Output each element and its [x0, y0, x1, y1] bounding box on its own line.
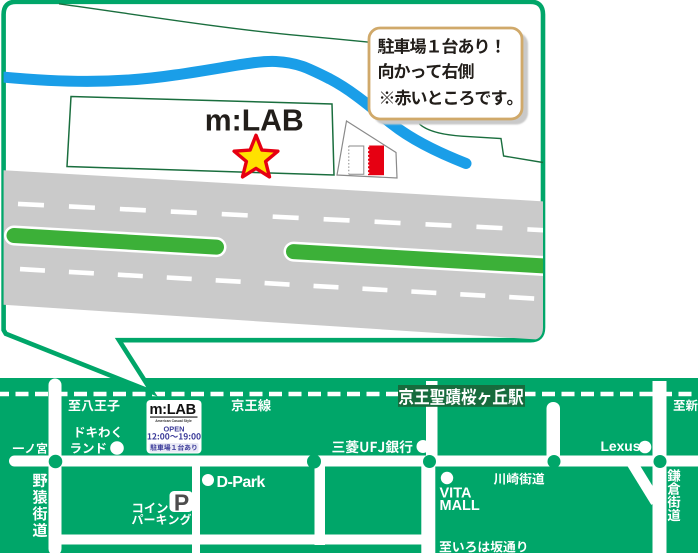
svg-text:American Casual Style: American Casual Style [155, 419, 192, 423]
svg-text:MALL: MALL [440, 498, 480, 514]
svg-text:D-Park: D-Park [217, 474, 266, 491]
svg-text:OPEN: OPEN [164, 425, 185, 434]
svg-text:P: P [174, 490, 189, 516]
svg-text:Lexus: Lexus [601, 439, 641, 454]
svg-text:m:LAB: m:LAB [150, 402, 196, 418]
svg-text:m:LAB: m:LAB [205, 104, 304, 137]
